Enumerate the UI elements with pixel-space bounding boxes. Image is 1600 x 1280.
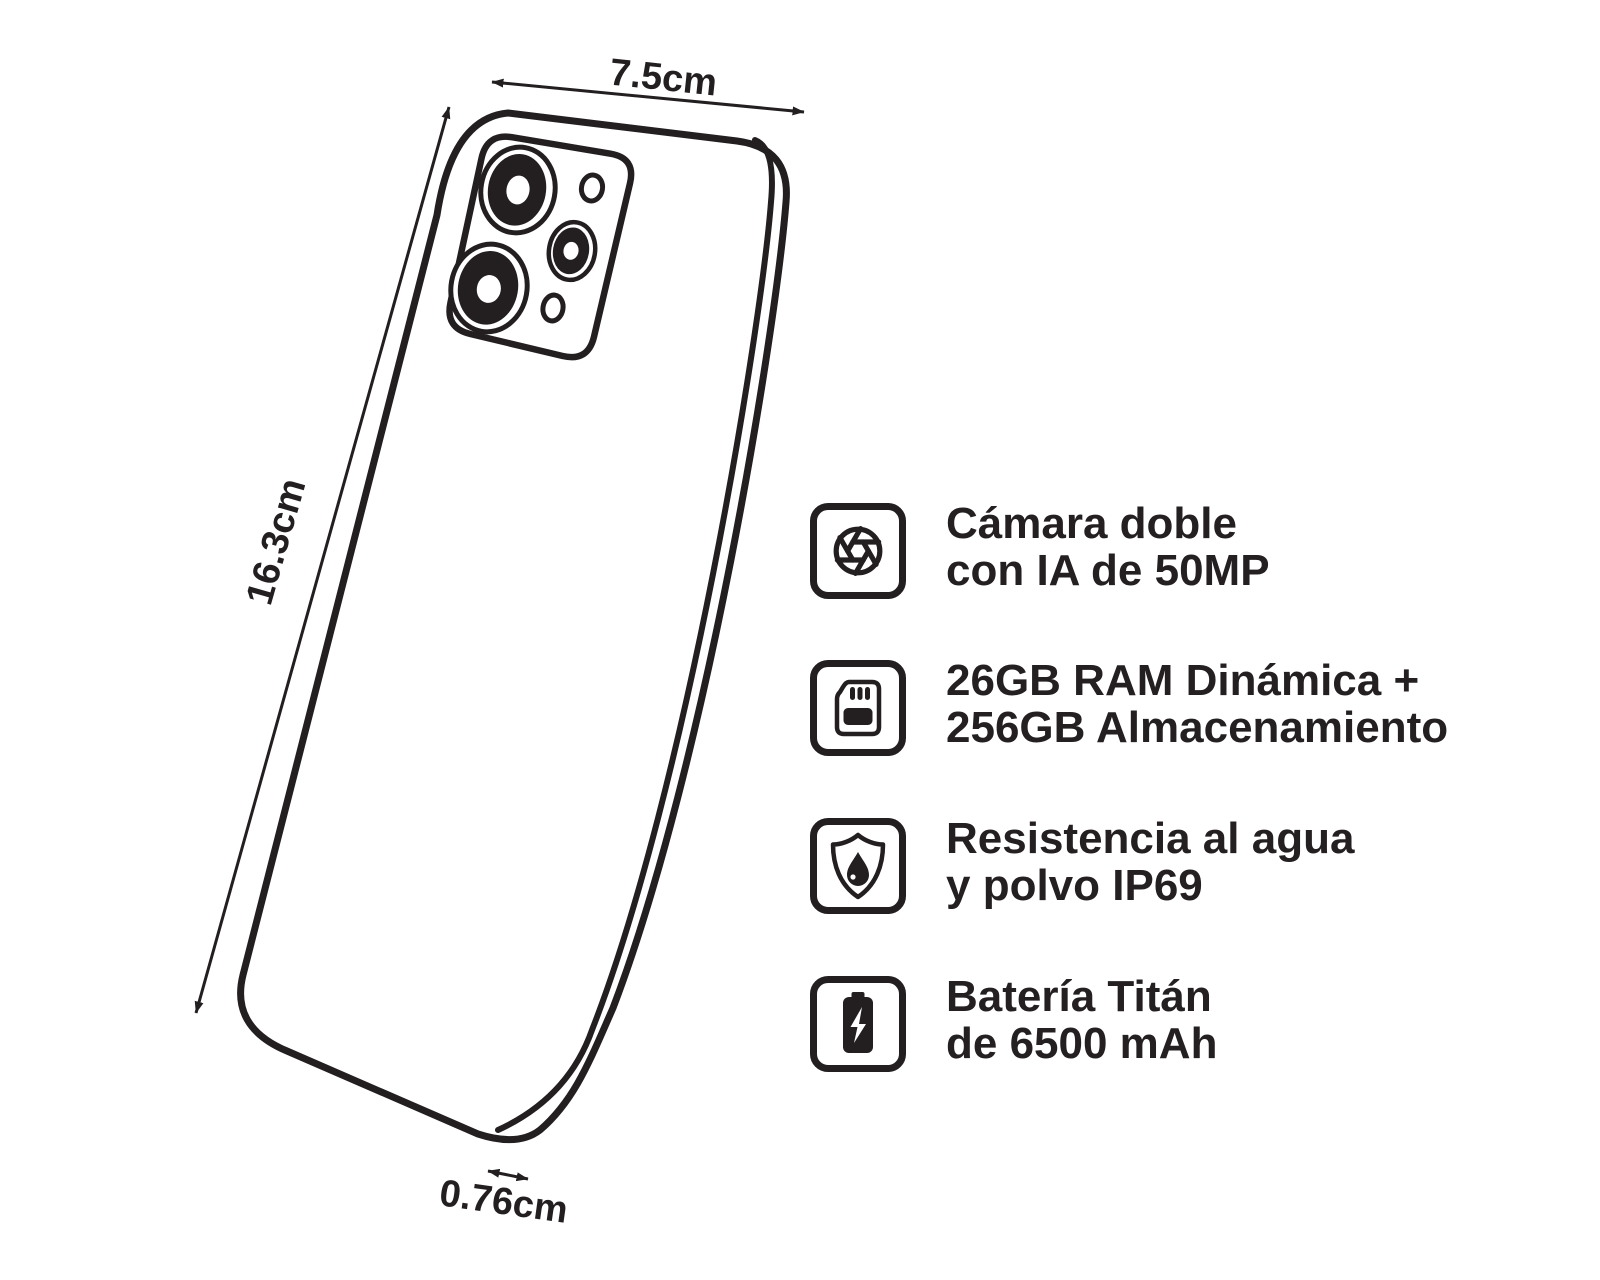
feature-item-camera: Cámara doble con IA de 50MP	[810, 503, 1270, 599]
depth-dimension-arrow	[488, 1171, 528, 1179]
feature-item-water-resistance: Resistencia al agua y polvo IP69	[810, 818, 1354, 914]
feature-line-1: Resistencia al agua	[946, 815, 1354, 862]
aperture-icon	[810, 503, 906, 599]
feature-line-2: y polvo IP69	[946, 862, 1354, 909]
battery-icon	[810, 976, 906, 1072]
phone-diagram: 7.5cm 16.3cm 0.76cm	[0, 0, 860, 1280]
feature-text-water-resistance: Resistencia al agua y polvo IP69	[946, 815, 1354, 909]
sd-card-icon	[810, 660, 906, 756]
feature-line-2: 256GB Almacenamiento	[946, 704, 1448, 751]
feature-text-camera: Cámara doble con IA de 50MP	[946, 500, 1270, 594]
height-dimension-label: 16.3cm	[239, 474, 315, 609]
feature-line-1: Cámara doble	[946, 500, 1270, 547]
product-spec-diagram: 7.5cm 16.3cm 0.76cm	[0, 0, 1600, 1280]
feature-text-battery: Batería Titán de 6500 mAh	[946, 973, 1217, 1067]
feature-line-2: con IA de 50MP	[946, 547, 1270, 594]
camera-flash	[579, 173, 604, 202]
feature-text-memory: 26GB RAM Dinámica + 256GB Almacenamiento	[946, 657, 1448, 751]
feature-line-1: Batería Titán	[946, 973, 1217, 1020]
depth-dimension-label: 0.76cm	[437, 1172, 570, 1232]
width-dimension-label: 7.5cm	[607, 52, 719, 105]
feature-item-battery: Batería Titán de 6500 mAh	[810, 976, 1217, 1072]
camera-sensor-dot	[541, 293, 565, 322]
feature-item-memory: 26GB RAM Dinámica + 256GB Almacenamiento	[810, 660, 1448, 756]
shield-water-icon	[810, 818, 906, 914]
feature-line-2: de 6500 mAh	[946, 1020, 1217, 1067]
feature-line-1: 26GB RAM Dinámica +	[946, 657, 1448, 704]
